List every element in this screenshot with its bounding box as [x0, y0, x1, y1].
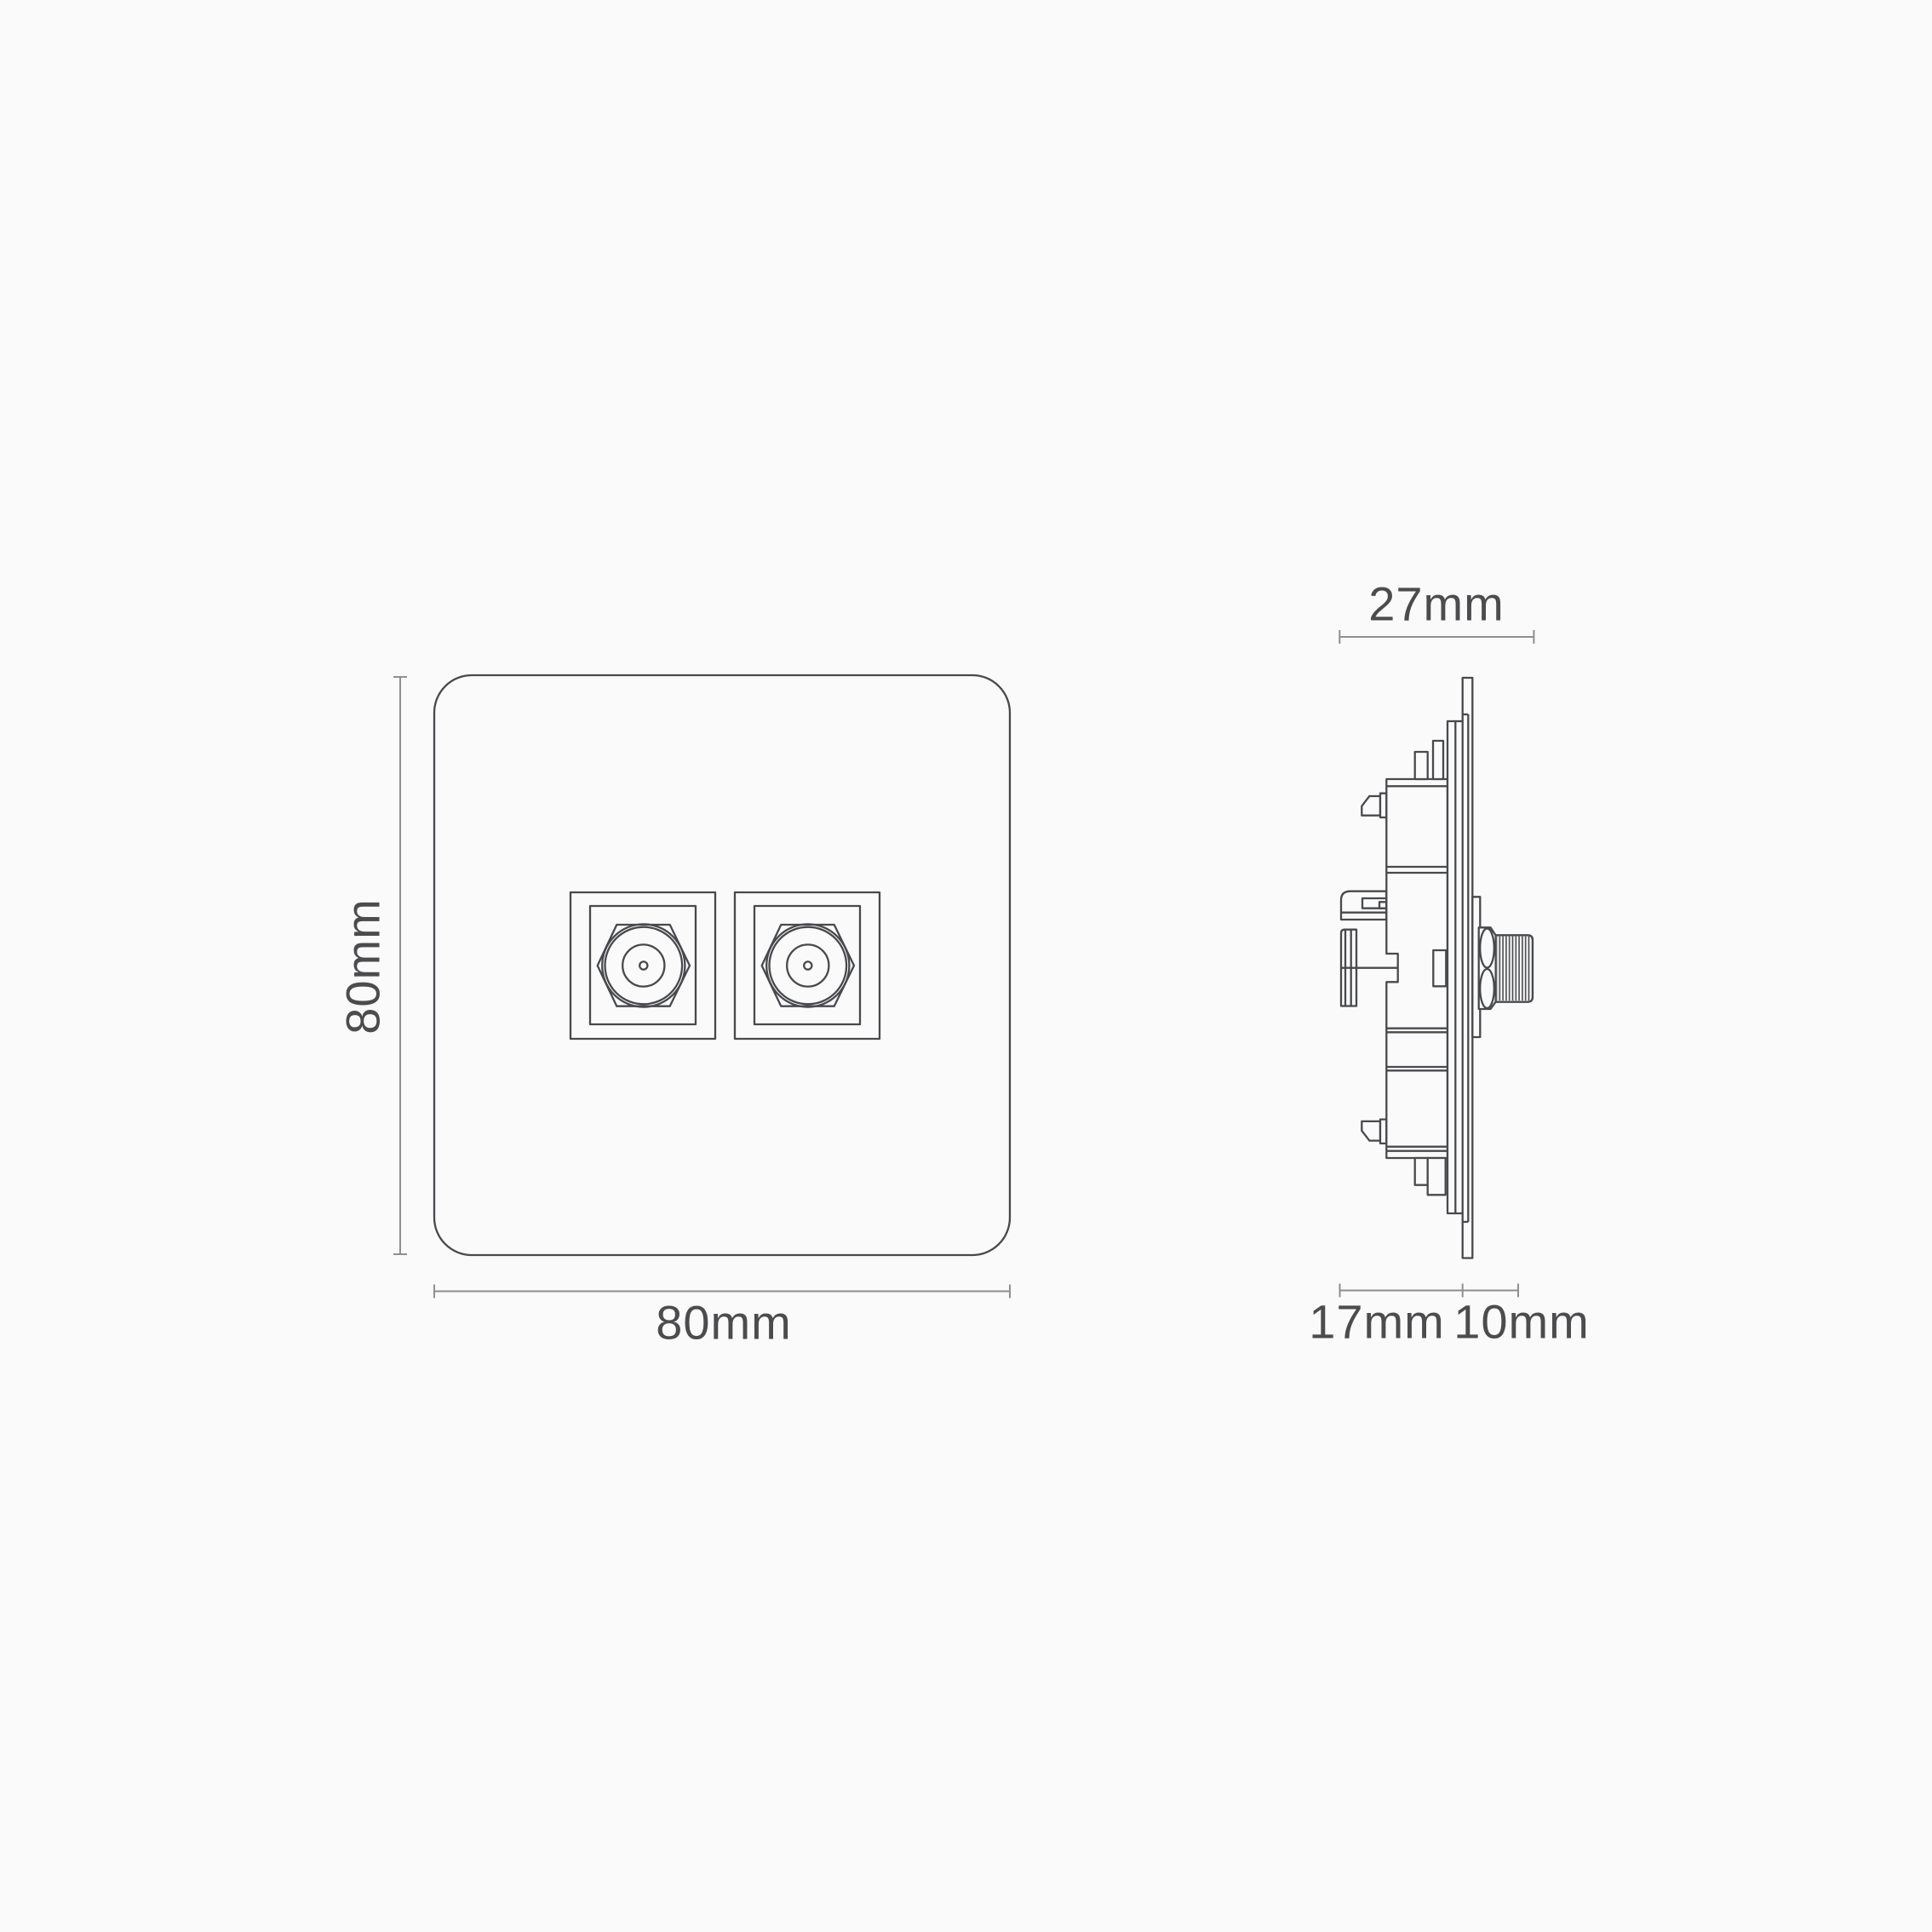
front-view-drawing — [434, 675, 1010, 1255]
side-module-depth-label: 17mm — [1309, 1294, 1445, 1350]
front-width-label: 80mm — [656, 1295, 792, 1350]
technical-drawing-canvas: 80mm 80mm 27mm 17mm 10mm — [0, 0, 1932, 1932]
side-connector-thread — [1496, 935, 1533, 1001]
line-art-layer — [0, 0, 1932, 1932]
front-height-dimension — [393, 677, 407, 1254]
side-clip-bottom — [1362, 1120, 1386, 1144]
side-faceplate — [1463, 678, 1473, 1258]
side-tab-bottom-tall — [1428, 1158, 1446, 1195]
side-clip-top — [1362, 794, 1386, 817]
side-connector-depth-label: 10mm — [1453, 1294, 1590, 1350]
side-backplate — [1448, 721, 1463, 1213]
side-tab-bottom-small — [1415, 1158, 1428, 1185]
side-connector-nut — [1479, 927, 1496, 1009]
side-tab-top-small — [1415, 752, 1428, 779]
faceplate-front — [434, 675, 1010, 1255]
side-tab-top-tall — [1433, 741, 1443, 779]
side-view-drawing — [1341, 678, 1533, 1258]
front-height-label: 80mm — [335, 898, 391, 1035]
side-depth-label: 27mm — [1368, 576, 1505, 632]
side-depth-dimension — [1339, 630, 1534, 644]
